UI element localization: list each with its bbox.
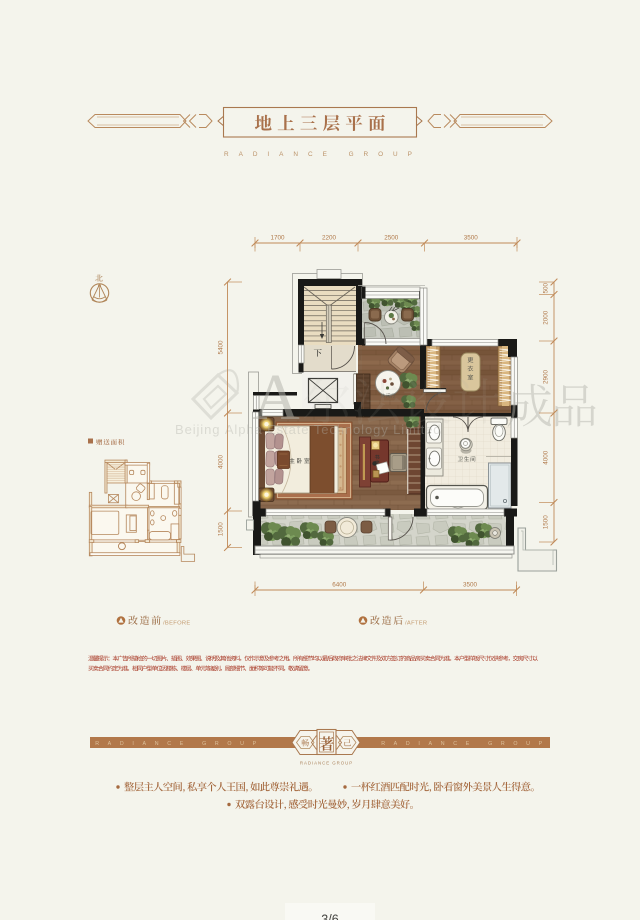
svg-text:3/6: 3/6 <box>321 913 338 920</box>
svg-text:5400: 5400 <box>218 340 225 355</box>
svg-text:1500: 1500 <box>543 515 550 530</box>
svg-text:4000: 4000 <box>543 450 550 465</box>
svg-text:500: 500 <box>543 283 550 294</box>
svg-text:/AFTER: /AFTER <box>405 621 427 627</box>
svg-text:Beijing Alpha Estate Technolog: Beijing Alpha Estate Technology Limited <box>175 422 441 437</box>
svg-text:R A D I A N C E G R O U P: R A D I A N C E G R O U P <box>224 151 416 158</box>
svg-text:2000: 2000 <box>543 310 550 325</box>
svg-text:2500: 2500 <box>384 235 399 242</box>
svg-text:R A D I A N C E G R O U P: R A D I A N C E G R O U P <box>95 741 260 747</box>
svg-text:6400: 6400 <box>332 582 347 589</box>
svg-text:1500: 1500 <box>218 522 225 537</box>
svg-text:3500: 3500 <box>463 582 478 589</box>
svg-text:/BEFORE: /BEFORE <box>163 621 191 627</box>
svg-text:R A D I A N C E G R O U P: R A D I A N C E G R O U P <box>381 741 546 747</box>
svg-text:1700: 1700 <box>270 235 285 242</box>
svg-text:3500: 3500 <box>464 235 479 242</box>
svg-text:4000: 4000 <box>218 455 225 470</box>
svg-text:RADIANCE GROUP: RADIANCE GROUP <box>300 761 353 766</box>
svg-text:2200: 2200 <box>322 235 337 242</box>
svg-text:2900: 2900 <box>543 370 550 385</box>
